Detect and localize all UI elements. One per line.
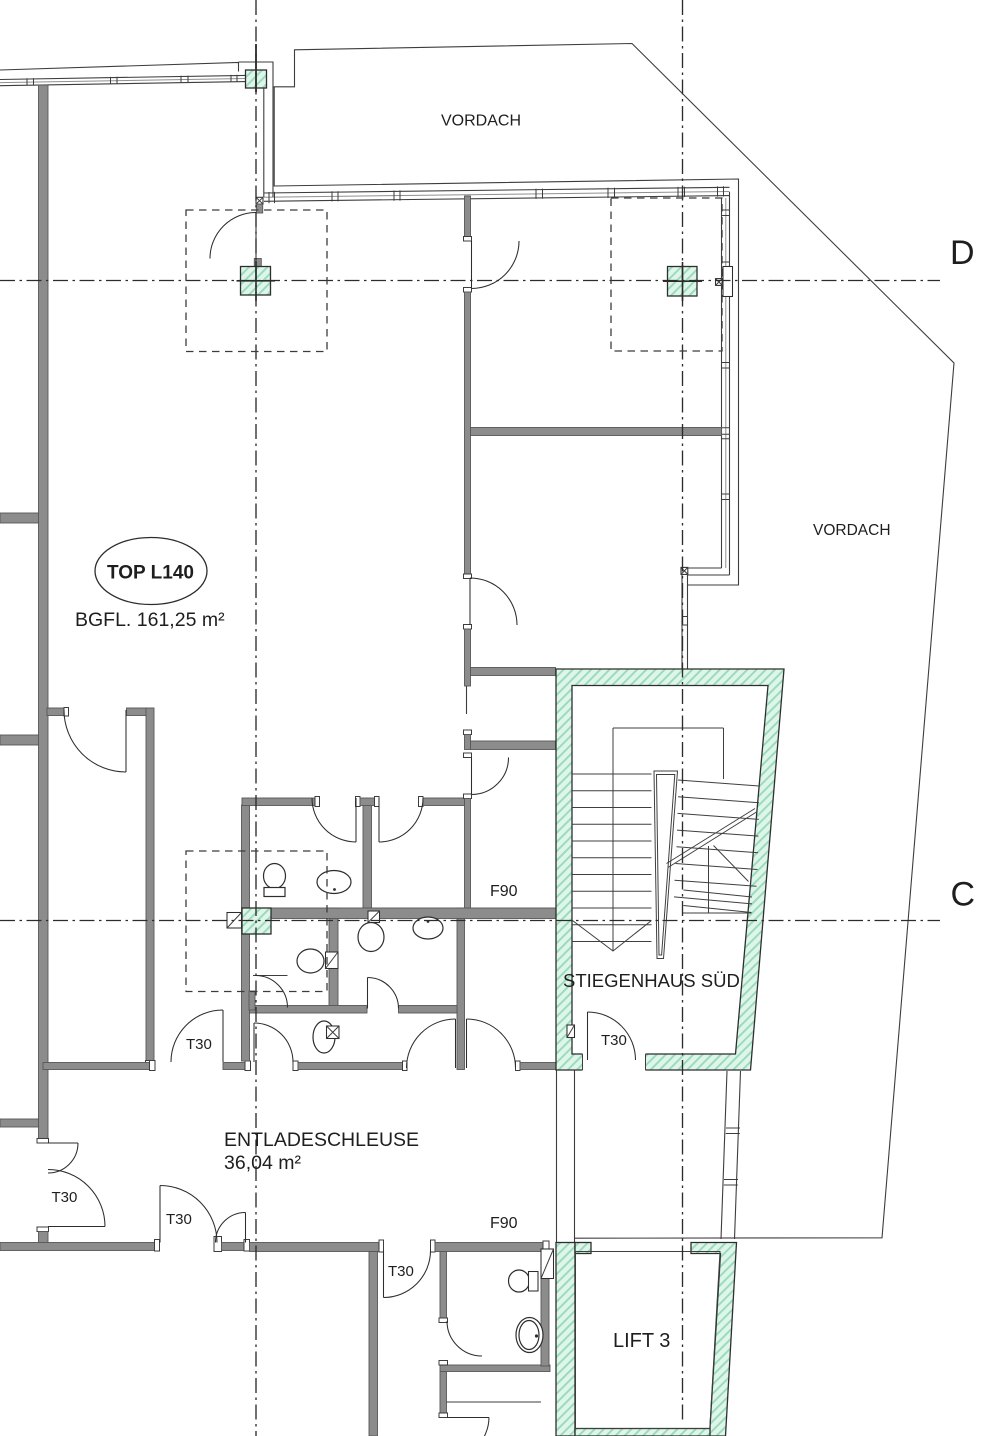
svg-text:LIFT 3: LIFT 3	[613, 1330, 670, 1352]
svg-text:F90: F90	[490, 883, 518, 900]
svg-text:VORDACH: VORDACH	[441, 113, 521, 130]
svg-text:F90: F90	[490, 1215, 518, 1232]
svg-text:T30: T30	[388, 1263, 414, 1280]
svg-text:C: C	[951, 876, 976, 914]
svg-text:T30: T30	[52, 1189, 78, 1206]
svg-text:T30: T30	[186, 1036, 212, 1053]
svg-text:T30: T30	[601, 1032, 627, 1049]
svg-text:STIEGENHAUS SÜD: STIEGENHAUS SÜD	[563, 970, 740, 991]
svg-text:ENTLADESCHLEUSE: ENTLADESCHLEUSE	[224, 1129, 419, 1151]
svg-text:VORDACH: VORDACH	[813, 522, 891, 539]
svg-text:T30: T30	[166, 1211, 192, 1228]
svg-text:36,04 m²: 36,04 m²	[224, 1152, 301, 1174]
svg-text:D: D	[950, 234, 975, 272]
svg-text:BGFL. 161,25 m²: BGFL. 161,25 m²	[75, 609, 225, 631]
svg-text:TOP L140: TOP L140	[107, 563, 194, 584]
